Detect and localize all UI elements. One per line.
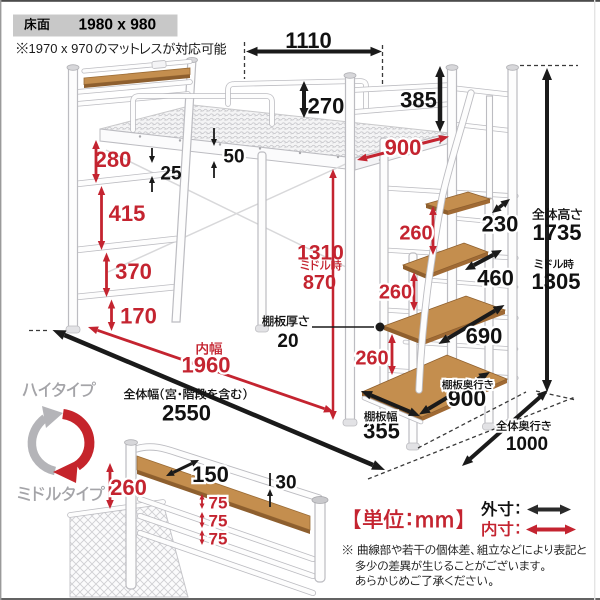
svg-text:385: 385 [400,88,437,113]
svg-text:1110: 1110 [285,28,332,53]
svg-text:75: 75 [209,530,228,549]
svg-text:2550: 2550 [162,401,211,426]
svg-text:1735: 1735 [533,220,582,245]
svg-text:260: 260 [110,475,147,500]
svg-text:260: 260 [355,348,388,370]
svg-text:280: 280 [95,147,132,172]
svg-text:690: 690 [466,324,503,349]
svg-text:75: 75 [209,494,228,513]
svg-text:900: 900 [385,135,422,160]
svg-text:75: 75 [209,512,228,531]
svg-text:1970 x 970: 1970 x 970 [29,41,93,56]
svg-text:415: 415 [109,201,146,226]
svg-text:460: 460 [477,266,514,291]
svg-text:260: 260 [379,282,412,304]
svg-text:20: 20 [277,331,298,352]
svg-text:30: 30 [275,473,296,494]
svg-text:1000: 1000 [506,434,548,455]
svg-text:1305: 1305 [532,269,581,294]
svg-text:260: 260 [399,223,432,245]
svg-text:370: 370 [115,259,152,284]
svg-text:870: 870 [303,272,336,294]
svg-text:270: 270 [308,94,345,119]
svg-text:50: 50 [223,147,244,168]
svg-text:150: 150 [192,462,229,487]
svg-text:25: 25 [160,164,182,185]
svg-text:230: 230 [482,212,519,237]
svg-text:1980 x 980: 1980 x 980 [79,17,157,34]
svg-text:170: 170 [120,304,157,329]
